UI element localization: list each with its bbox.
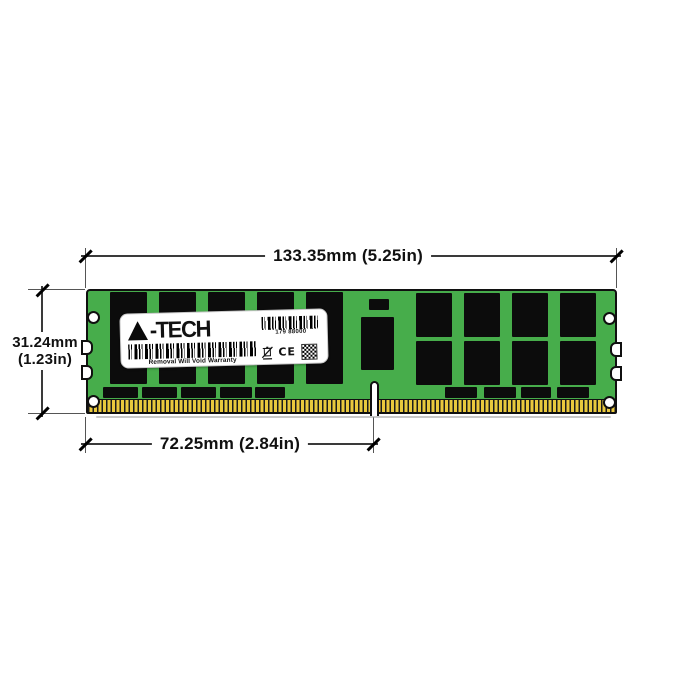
memory-chip — [512, 293, 548, 337]
buffer-chip — [181, 387, 216, 398]
height-dimension-mm: 31.24mm — [12, 334, 78, 351]
extension-line-bottom-notch — [373, 417, 374, 453]
edge-notch — [81, 365, 93, 380]
serial-number: 179 88000 — [262, 328, 320, 337]
ce-mark: CE — [278, 345, 296, 358]
buffer-chip — [557, 387, 589, 398]
mounting-hole — [87, 395, 100, 408]
memory-chip — [464, 293, 500, 337]
mounting-hole — [87, 311, 100, 324]
memory-chip — [464, 341, 500, 385]
edge-notch — [610, 366, 622, 381]
height-dimension-in: (1.23in) — [12, 351, 78, 368]
register-buffer-chip — [361, 317, 394, 370]
module-shadow — [96, 416, 611, 418]
memory-chip — [416, 341, 452, 385]
diagram-canvas: 133.35mm (5.25in) 31.24mm (1.23in) 72.25… — [0, 0, 700, 700]
qr-code-icon — [301, 343, 317, 359]
ram-module-pcb: -TECH 179 88000 Removal Will Void Warran… — [86, 289, 617, 414]
extension-line-bottom-left — [85, 417, 86, 453]
product-label: -TECH 179 88000 Removal Will Void Warran… — [119, 308, 328, 368]
extension-line-left-bottom — [28, 413, 85, 414]
buffer-chip — [521, 387, 551, 398]
a-tech-logo-triangle-icon — [128, 320, 148, 340]
memory-chip — [560, 293, 596, 337]
extension-line-left-top — [28, 289, 85, 290]
weee-bin-icon — [261, 345, 273, 360]
key-notch — [370, 381, 379, 416]
memory-chip — [512, 341, 548, 385]
buffer-chip — [255, 387, 285, 398]
mounting-hole — [603, 312, 616, 325]
spd-chip — [369, 299, 389, 310]
buffer-chip — [103, 387, 138, 398]
height-dimension-label: 31.24mm (1.23in) — [8, 332, 82, 370]
width-dimension-label: 133.35mm (5.25in) — [265, 245, 431, 267]
buffer-chip — [445, 387, 477, 398]
edge-notch — [610, 342, 622, 357]
dimension-tick — [36, 283, 50, 297]
gold-pin-strip — [88, 399, 615, 412]
a-tech-logo: -TECH — [128, 319, 213, 340]
buffer-chip — [220, 387, 252, 398]
memory-chip — [416, 293, 452, 337]
buffer-chip — [142, 387, 177, 398]
buffer-chip — [484, 387, 516, 398]
edge-notch — [81, 340, 93, 355]
mounting-hole — [603, 396, 616, 409]
pins-dimension-label: 72.25mm (2.84in) — [152, 433, 308, 455]
a-tech-logo-text: -TECH — [150, 319, 211, 340]
memory-chip — [560, 341, 596, 385]
